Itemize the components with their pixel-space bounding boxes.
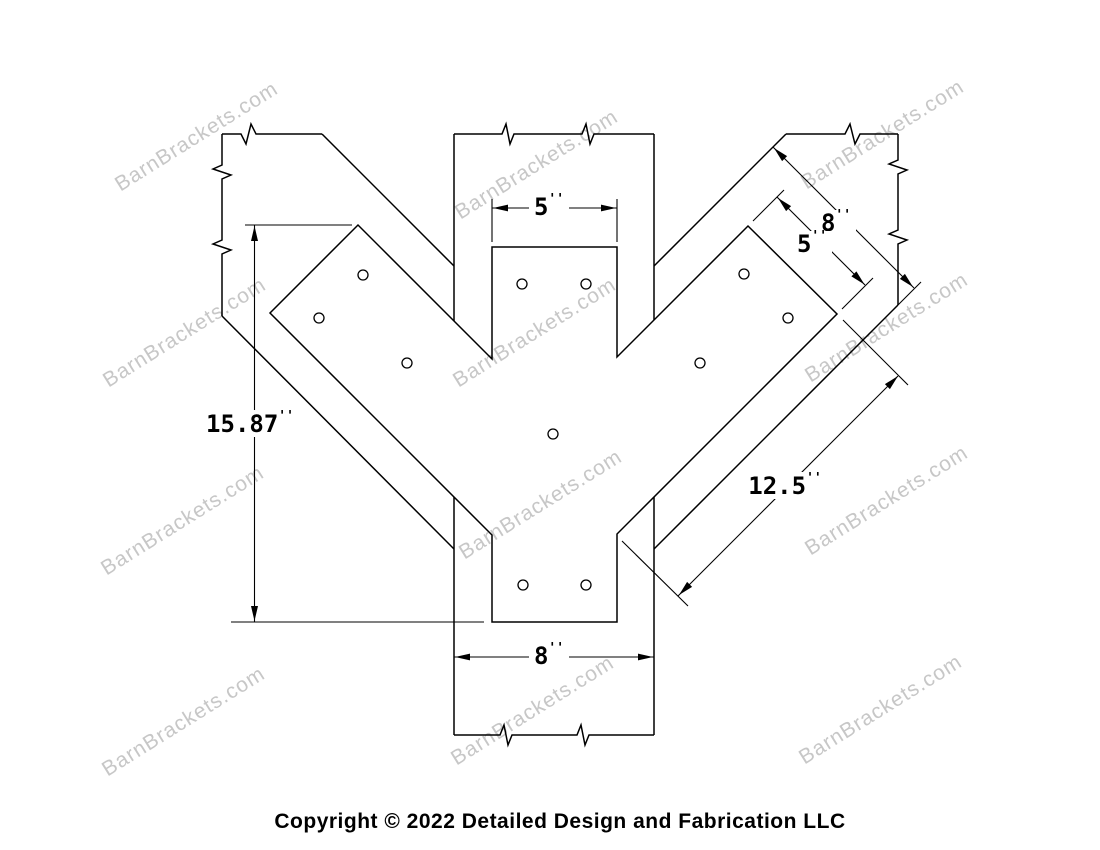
extension-line bbox=[753, 190, 784, 221]
dimension-unit: '' bbox=[548, 641, 564, 656]
bolt-hole bbox=[695, 358, 705, 368]
watermark-text: BarnBrackets.com bbox=[97, 461, 268, 580]
dimension-unit: '' bbox=[806, 471, 822, 486]
left-brace-break-cut-side bbox=[213, 134, 231, 316]
left-brace-upper-edge bbox=[322, 134, 454, 266]
bolt-hole bbox=[517, 279, 527, 289]
right-brace-upper-edge bbox=[654, 134, 786, 266]
watermark-text: BarnBrackets.com bbox=[801, 268, 972, 387]
watermark-text: BarnBrackets.com bbox=[795, 650, 966, 769]
bolt-hole bbox=[358, 270, 368, 280]
dim-brace-width: 8'' bbox=[773, 147, 921, 305]
bolt-hole bbox=[783, 313, 793, 323]
left-brace-break-cut-top bbox=[222, 124, 322, 144]
arrowhead bbox=[455, 654, 470, 661]
dimension-value: 12.5 bbox=[748, 472, 806, 500]
watermark-text: BarnBrackets.com bbox=[98, 662, 269, 781]
dimension-value: 15.87 bbox=[206, 410, 278, 438]
bolt-hole bbox=[739, 269, 749, 279]
watermark-text: BarnBrackets.com bbox=[111, 77, 282, 196]
dim-top-plate-width: 5'' bbox=[492, 192, 617, 243]
arrowhead bbox=[601, 205, 616, 212]
copyright-text: Copyright © 2022 Detailed Design and Fab… bbox=[274, 810, 845, 833]
extension-line bbox=[842, 278, 873, 309]
dimension-unit: '' bbox=[548, 192, 564, 207]
arrowhead bbox=[493, 205, 508, 212]
bracket-plate bbox=[270, 225, 837, 622]
dimension-unit: '' bbox=[811, 229, 827, 244]
extension-line bbox=[622, 541, 688, 606]
bolt-hole bbox=[581, 580, 591, 590]
dimension-value: 5 bbox=[534, 193, 548, 221]
dimension-value: 5 bbox=[797, 230, 811, 258]
bolt-hole bbox=[581, 279, 591, 289]
arrowhead bbox=[251, 226, 258, 241]
arrowhead bbox=[638, 654, 653, 661]
bolt-hole bbox=[518, 580, 528, 590]
plate-outline bbox=[270, 225, 837, 622]
dim-post-width: 8'' bbox=[454, 641, 654, 671]
bracket-technical-drawing: BarnBrackets.com BarnBrackets.com BarnBr… bbox=[0, 0, 1100, 850]
dim-brace-plate-length: 12.5'' bbox=[622, 320, 908, 606]
bolt-hole bbox=[548, 429, 558, 439]
watermark-text: BarnBrackets.com bbox=[455, 445, 626, 564]
watermark-text: BarnBrackets.com bbox=[801, 441, 972, 560]
watermark-text: BarnBrackets.com bbox=[99, 273, 270, 392]
watermark-text: BarnBrackets.com bbox=[449, 273, 620, 392]
dimension-value: 8 bbox=[534, 642, 548, 670]
arrowhead bbox=[251, 606, 258, 621]
bolt-hole bbox=[402, 358, 412, 368]
dimension-unit: '' bbox=[835, 208, 851, 223]
bolt-hole bbox=[314, 313, 324, 323]
dimension-unit: '' bbox=[278, 409, 294, 424]
